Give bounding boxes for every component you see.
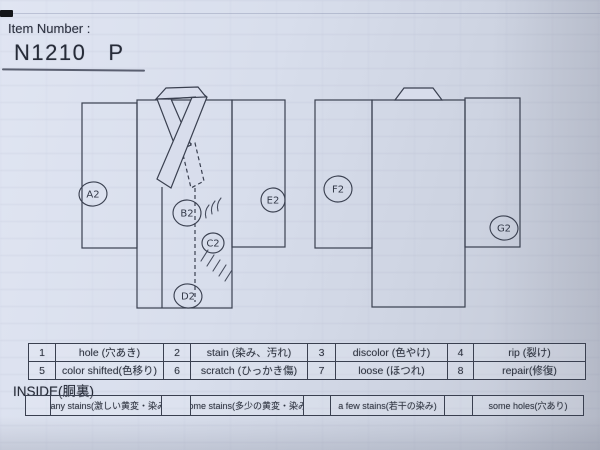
inside-checkbox-cell (26, 396, 51, 416)
front-left-sleeve (82, 103, 137, 248)
inside-checkbox-cell (445, 396, 473, 416)
legend-num: 3 (308, 344, 336, 362)
legend-num: 4 (448, 344, 474, 362)
inspection-sheet-photo: Item Number : N1210P (0, 0, 600, 450)
inside-label: some stains(多少の黄変・染み) (191, 396, 304, 416)
marker-g2-label: G2 (497, 224, 511, 235)
legend-label: rip (裂け) (474, 344, 586, 362)
marker-b2: B2 (172, 199, 202, 227)
legend-label: scratch (ひっかき傷) (191, 362, 308, 380)
marker-d2-label: D2 (181, 292, 195, 303)
inside-label: a few stains(若干の染み) (331, 396, 445, 416)
defect-legend-table: 1 hole (穴あき) 2 stain (染み、汚れ) 3 discolor … (28, 343, 586, 380)
defect-markers: A2 B2 C2 D2 E2 F2 (78, 175, 520, 309)
legend-label: stain (染み、汚れ) (191, 344, 308, 362)
marker-d2: D2 (173, 283, 203, 310)
marker-e2: E2 (260, 187, 286, 213)
legend-label: hole (穴あき) (56, 344, 164, 362)
legend-num: 2 (164, 344, 191, 362)
front-neckband (156, 87, 206, 99)
back-left-sleeve (315, 100, 372, 248)
back-body (372, 100, 465, 307)
legend-label: loose (ほつれ) (336, 362, 448, 380)
kimono-front-view (82, 87, 285, 308)
marker-f2-label: F2 (332, 185, 344, 196)
kimono-back-view (315, 88, 520, 307)
legend-num: 1 (29, 344, 56, 362)
marker-a2-label: A2 (86, 190, 99, 201)
scratch-marks-upper (205, 198, 221, 218)
scratch-marks-lower (201, 250, 232, 281)
marker-c2: C2 (202, 233, 224, 253)
marker-e2-label: E2 (267, 196, 280, 207)
marker-c2-label: C2 (206, 239, 219, 250)
inside-checkbox-cell (162, 396, 191, 416)
legend-label: color shifted(色移り) (56, 362, 164, 380)
marker-b2-label: B2 (180, 209, 193, 220)
back-right-sleeve (465, 98, 520, 247)
front-right-sleeve (232, 100, 285, 247)
inside-checkbox-cell (304, 396, 331, 416)
inside-condition-table: many stains(激しい黄変・染み) some stains(多少の黄変・… (25, 395, 584, 416)
legend-num: 6 (164, 362, 191, 380)
inside-label: many stains(激しい黄変・染み) (51, 396, 162, 416)
legend-label: repair(修復) (474, 362, 586, 380)
inside-label: some holes(穴あり) (473, 396, 584, 416)
marker-f2: F2 (323, 175, 353, 203)
legend-label: discolor (色やけ) (336, 344, 448, 362)
back-neckband (395, 88, 442, 100)
legend-num: 5 (29, 362, 56, 380)
marker-g2: G2 (488, 214, 519, 242)
legend-num: 7 (308, 362, 336, 380)
legend-num: 8 (448, 362, 474, 380)
